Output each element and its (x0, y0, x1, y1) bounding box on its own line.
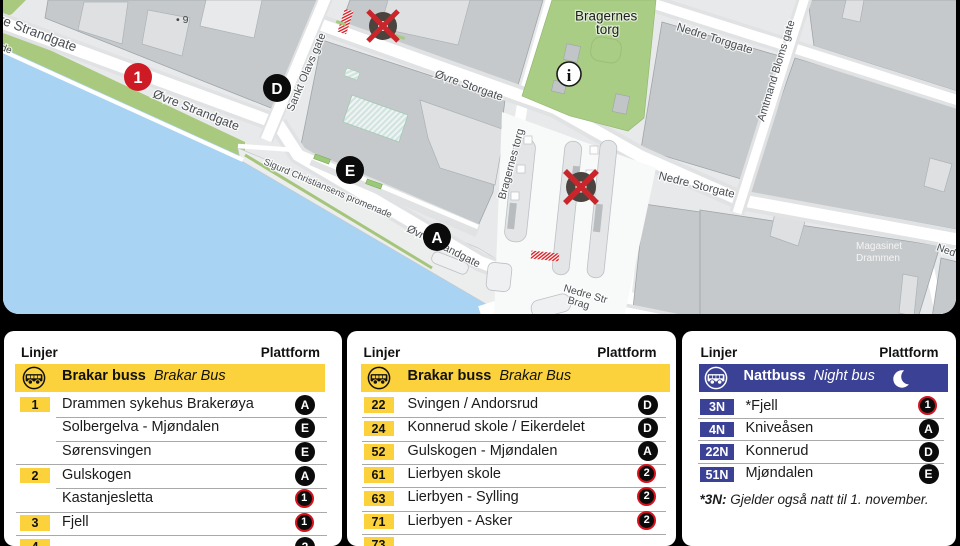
svg-text:E: E (345, 163, 355, 180)
svg-text:1: 1 (133, 69, 142, 87)
svg-text:Drammen: Drammen (856, 253, 900, 264)
svg-text:D: D (271, 81, 282, 98)
svg-text:A: A (431, 230, 442, 247)
svg-text:Magasinet: Magasinet (856, 241, 902, 252)
svg-text:• 9: • 9 (176, 14, 189, 26)
svg-text:i: i (567, 66, 572, 85)
svg-text:torg: torg (596, 22, 619, 37)
